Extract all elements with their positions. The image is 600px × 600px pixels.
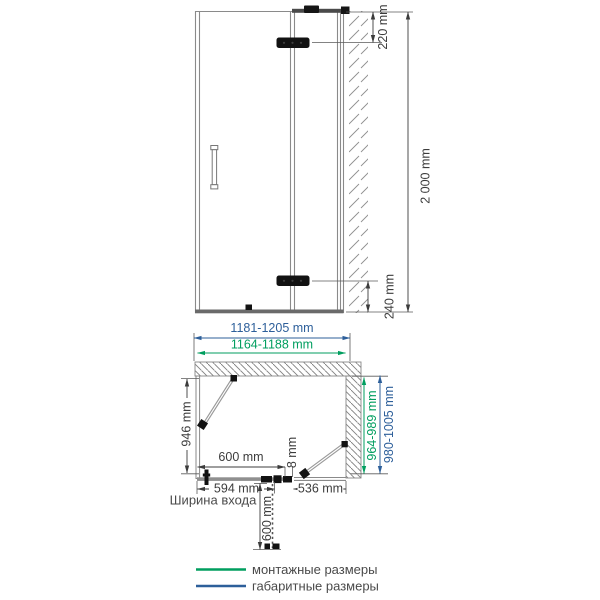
dim-glass-thickness: 8 mm	[285, 437, 299, 468]
plan-door-hinge-hardware	[261, 475, 292, 483]
drawing-canvas: 220 mm 240 mm 2 000 mm	[0, 0, 600, 600]
elevation-top-support-bar	[292, 9, 348, 13]
door-handle	[211, 146, 218, 189]
dim-door-opening-depth: 600 mm	[260, 496, 274, 541]
dim-fixed-panel-width: 536 mm	[298, 481, 343, 495]
plan-front-dimensions: 594 mm 536 mm Ширина входа	[170, 481, 346, 508]
elevation-view: 220 mm 240 mm 2 000 mm	[195, 4, 432, 319]
plan-top-wall	[195, 362, 361, 376]
dim-top-hinge-offset: 220 mm	[376, 4, 390, 49]
support-brace-top-left	[197, 375, 237, 430]
elevation-dimensions: 220 mm 240 mm 2 000 mm	[312, 4, 432, 319]
dim-door-width: 600 mm	[218, 450, 263, 464]
plan-view: 1181-1205 mm 1164-1188 mm 964-989 mm 980…	[170, 321, 396, 550]
dim-mounting-width: 1164-1188 mm	[231, 338, 313, 352]
dim-overall-depth: 980-1005 mm	[382, 386, 396, 463]
dim-side-panel-depth: 946 mm	[179, 401, 193, 446]
plan-open-door-handle	[265, 544, 280, 550]
plan-door-width-dimension: 600 mm	[198, 450, 286, 477]
support-brace-bottom-right	[299, 441, 348, 479]
dim-bottom-hinge-offset: 240 mm	[382, 274, 396, 319]
dim-height: 2 000 mm	[418, 148, 432, 204]
dim-mounting-depth: 964-989 mm	[365, 390, 379, 460]
plan-width-dimensions: 1181-1205 mm 1164-1188 mm	[194, 321, 350, 361]
bottom-door-pivot	[246, 305, 253, 311]
legend-mounting-label: монтажные размеры	[252, 562, 377, 577]
plan-right-wall	[346, 376, 361, 478]
plan-left-glass-panel	[196, 376, 200, 479]
bottom-hinge	[277, 276, 310, 287]
entrance-width-label: Ширина входа	[170, 493, 257, 508]
wall-corner-bracket	[341, 7, 350, 15]
plan-glass-thickness-dimension: 8 mm	[285, 437, 299, 477]
shower-enclosure-technical-drawing: 220 mm 240 mm 2 000 mm	[0, 0, 600, 600]
legend: монтажные размеры габаритные размеры	[196, 562, 379, 594]
top-hinge	[277, 38, 310, 49]
support-bar-bracket	[304, 6, 319, 14]
elevation-wall-hatch	[349, 11, 368, 313]
legend-overall-label: габаритные размеры	[252, 579, 379, 594]
dim-overall-width: 1181-1205 mm	[230, 321, 313, 335]
elevation-bottom-bar	[195, 310, 344, 314]
